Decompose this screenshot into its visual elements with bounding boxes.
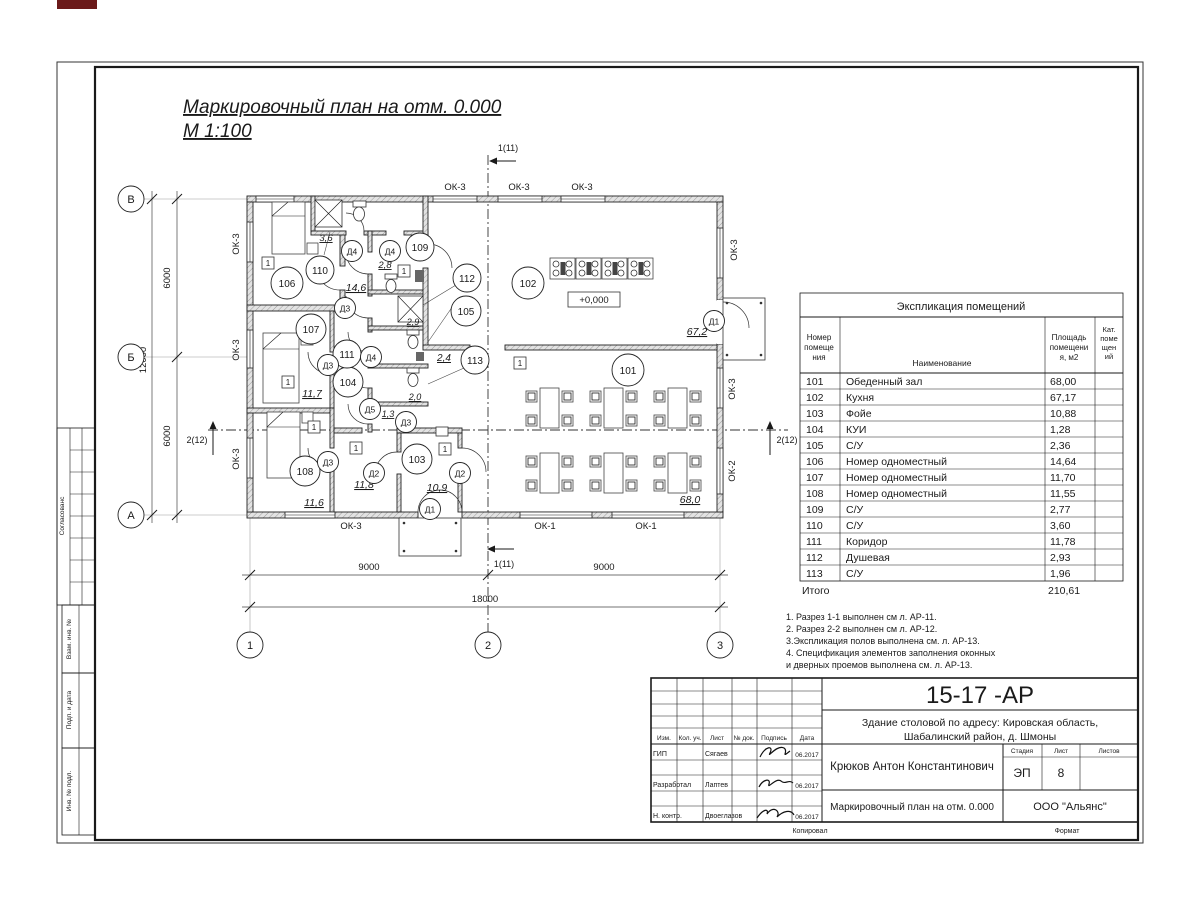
axis-row-a: А xyxy=(127,510,135,522)
row-area: 11,55 xyxy=(1050,488,1076,500)
room-number-106: 106 xyxy=(279,279,296,290)
bed-106 xyxy=(272,202,305,254)
note-line: 4. Спецификация элементов заполнения око… xyxy=(786,648,996,658)
door-label-d1: Д1 xyxy=(709,317,720,327)
floor-mark: 1 xyxy=(286,378,291,387)
section-mark-2: 2(12) xyxy=(186,435,207,445)
row-name: Номер одноместный xyxy=(846,472,947,484)
sink xyxy=(416,352,424,361)
row-name: С/У xyxy=(846,504,864,516)
row-num: 109 xyxy=(806,504,824,516)
tb-role-razrabotal: Разработал xyxy=(653,781,691,789)
room-number-105: 105 xyxy=(458,307,475,318)
scan-artifact xyxy=(57,0,97,9)
nightstand xyxy=(307,243,318,254)
room-area-102: 67,2 xyxy=(687,326,708,338)
notes: 1. Разрез 1-1 выполнен см л. АР-11. 2. Р… xyxy=(786,612,996,670)
toilet-tank xyxy=(353,201,366,207)
col-header-num: Номер xyxy=(807,333,832,342)
floor-mark: 1 xyxy=(443,445,448,454)
row-area: 1,28 xyxy=(1050,424,1071,436)
col-header-area: помещени xyxy=(1050,343,1089,352)
drawing-name: Маркировочный план на отм. 0.000 xyxy=(830,802,994,813)
tb-col-podpis: Подпись xyxy=(761,735,787,742)
room-number-104: 104 xyxy=(340,378,357,389)
row-area: 11,78 xyxy=(1050,536,1076,548)
dim-18000: 18000 xyxy=(472,594,498,605)
stage-value: ЭП xyxy=(1013,766,1030,780)
doc-number: 15-17 -АР xyxy=(926,682,1034,709)
row-num: 102 xyxy=(806,392,824,404)
kitchen-stoves xyxy=(550,258,653,279)
tb-col-dok: № док. xyxy=(734,735,755,742)
window-label-ok2: ОК-2 xyxy=(727,460,738,481)
toilet-tank xyxy=(385,274,397,279)
sheet-label: Лист xyxy=(1054,748,1068,755)
format-label: Формат xyxy=(1055,828,1081,835)
row-name: С/У xyxy=(846,568,864,580)
axis-col-1: 1 xyxy=(247,640,253,652)
room-area-107: 11,7 xyxy=(302,388,323,400)
row-area: 68,00 xyxy=(1050,376,1076,388)
toilet-bowl xyxy=(408,336,418,349)
room-number-103: 103 xyxy=(409,455,426,466)
room-number-111: 111 xyxy=(339,350,355,361)
axis-col-2: 2 xyxy=(485,640,491,652)
room-number-107: 107 xyxy=(303,325,320,336)
stamp-inv-label: Инв. № подл. xyxy=(66,771,73,812)
col-header-cat: ий xyxy=(1105,352,1113,361)
total-label: Итого xyxy=(802,585,830,597)
sink-foyer xyxy=(436,427,448,436)
author-name: Крюков Антон Константинович xyxy=(830,761,994,773)
door-label-d3: Д3 xyxy=(323,361,334,371)
room-number-109: 109 xyxy=(412,243,429,254)
sink xyxy=(415,270,424,282)
door-label-d2: Д2 xyxy=(369,469,380,479)
row-num: 112 xyxy=(806,552,823,564)
tb-role-nkontr: Н. контр. xyxy=(653,813,682,820)
copied-label: Копировал xyxy=(792,828,827,835)
door-label-d2: Д2 xyxy=(455,469,466,479)
room-number-113: 113 xyxy=(467,356,483,367)
tb-name-dvoeglazov: Двоеглазов xyxy=(705,813,742,820)
door-label-d4: Д4 xyxy=(347,247,358,257)
col-header-area: Площадь xyxy=(1052,333,1087,342)
toilet-tank xyxy=(407,330,419,335)
row-name: С/У xyxy=(846,440,864,452)
door-label-d5: Д5 xyxy=(365,405,376,415)
col-header-num: ния xyxy=(812,353,825,362)
room-number-108: 108 xyxy=(297,467,314,478)
row-name: С/У xyxy=(846,520,864,532)
row-name: КУИ xyxy=(846,424,866,436)
dim-9000-left: 9000 xyxy=(358,562,379,573)
window-label-ok3: ОК-3 xyxy=(444,182,465,193)
dimensions-bottom: 9000 9000 18000 1 2 3 xyxy=(237,562,733,658)
floor-plan: ОК-3 ОК-3 ОК-3 ОК-3 ОК-3 ОК-3 ОК-3 ОК-1 … xyxy=(118,143,798,658)
note-line: 2. Разрез 2-2 выполнен см л. АР-12. xyxy=(786,624,937,634)
bed-107 xyxy=(263,333,299,403)
row-num: 108 xyxy=(806,488,824,500)
object-address-line1: Здание столовой по адресу: Кировская обл… xyxy=(862,717,1098,729)
page-title-line1: Маркировочный план на отм. 0.000 xyxy=(183,97,502,118)
room-area-110: 3,6 xyxy=(319,233,333,244)
toilet-bowl xyxy=(354,207,365,221)
level-mark-value: +0,000 xyxy=(579,295,608,306)
tb-col-izm: Изм. xyxy=(657,735,671,742)
room-area-101: 68,0 xyxy=(680,494,701,506)
toilet-bowl xyxy=(386,280,396,293)
dim-6000-top: 6000 xyxy=(162,267,173,288)
col-header-name: Наименование xyxy=(913,358,972,368)
door-label-d1: Д1 xyxy=(425,505,436,515)
drawing-sheet: Согласованс Взам. инв. № Подп. и дата Ин… xyxy=(0,0,1200,900)
row-name: Душевая xyxy=(846,552,890,564)
row-area: 67,17 xyxy=(1050,392,1076,404)
window-label-ok3: ОК-3 xyxy=(231,233,242,254)
level-mark: +0,000 xyxy=(568,292,620,307)
explication-table: Экспликация помещений Номер помеще ния Н… xyxy=(800,293,1123,597)
col-header-cat: поме xyxy=(1100,334,1118,343)
row-name: Коридор xyxy=(846,536,888,548)
sheet-value: 8 xyxy=(1058,766,1065,780)
title-block: Изм. Кол. уч. Лист № док. Подпись Дата Г… xyxy=(651,678,1138,835)
signature xyxy=(759,780,793,787)
row-name: Номер одноместный xyxy=(846,456,947,468)
floor-mark: 1 xyxy=(312,423,317,432)
row-num: 110 xyxy=(806,520,823,532)
explication-rows: 101Обеденный зал68,00 102Кухня67,17 103Ф… xyxy=(802,376,1080,597)
tb-name-sjagaev: Сягаев xyxy=(705,751,728,758)
dining-tables xyxy=(526,388,701,493)
floor-mark: 1 xyxy=(518,359,523,368)
total-value: 210,61 xyxy=(1048,585,1080,597)
col-header-cat: щен xyxy=(1102,343,1116,352)
col-header-cat: Кат. xyxy=(1102,325,1115,334)
window-label-ok3: ОК-3 xyxy=(231,339,242,360)
row-num: 111 xyxy=(806,536,822,548)
col-header-area: я, м2 xyxy=(1060,353,1079,362)
axis-row-v: В xyxy=(127,194,134,206)
row-area: 14,64 xyxy=(1050,456,1076,468)
page-title-line2: М 1:100 xyxy=(183,121,252,142)
tb-date: 06.2017 xyxy=(795,783,819,790)
stamp-podp-label: Подп. и дата xyxy=(66,690,73,729)
row-area: 11,70 xyxy=(1050,472,1076,484)
stage-label: Стадия xyxy=(1011,748,1034,755)
row-name: Фойе xyxy=(846,408,872,420)
section-mark-1: 1(11) xyxy=(494,559,514,569)
tb-col-list: Лист xyxy=(710,735,724,742)
tb-col-data: Дата xyxy=(800,735,815,742)
floor-mark: 1 xyxy=(266,259,271,268)
toilet-tank xyxy=(407,368,419,373)
tb-col-koluch: Кол. уч. xyxy=(678,735,701,742)
sheet-svg: Согласованс Взам. инв. № Подп. и дата Ин… xyxy=(0,0,1200,900)
room-area-103: 10,9 xyxy=(427,482,448,494)
window-label-ok3: ОК-3 xyxy=(340,521,361,532)
row-name: Кухня xyxy=(846,392,874,404)
room-number-102: 102 xyxy=(520,279,537,290)
row-num: 113 xyxy=(806,568,823,580)
section-mark-1: 1(11) xyxy=(498,143,518,153)
door-label-d3: Д3 xyxy=(323,458,334,468)
door-label-d4: Д4 xyxy=(385,247,396,257)
toilet-bowl xyxy=(408,374,418,387)
tb-date: 06.2017 xyxy=(795,814,819,821)
note-line: и дверных проемов выполнена см. л. АР-13… xyxy=(786,660,972,670)
window-label-ok3: ОК-3 xyxy=(729,239,740,260)
window-label-ok1: ОК-1 xyxy=(635,521,656,532)
floor-mark: 1 xyxy=(402,267,407,276)
tb-name-laptev: Лаптев xyxy=(705,782,728,789)
signature xyxy=(757,809,794,818)
row-area: 2,36 xyxy=(1050,440,1071,452)
axis-row-b: Б xyxy=(127,352,134,364)
door-label-d3: Д3 xyxy=(401,418,412,428)
note-line: 1. Разрез 1-1 выполнен см л. АР-11. xyxy=(786,612,937,622)
door-label-d4: Д4 xyxy=(366,353,377,363)
row-num: 103 xyxy=(806,408,824,420)
row-name: Номер одноместный xyxy=(846,488,947,500)
room-area-113: 2,0 xyxy=(408,392,422,402)
room-area-106: 14,6 xyxy=(346,282,367,294)
tb-date: 06.2017 xyxy=(795,752,819,759)
window-label-ok3: ОК-3 xyxy=(727,378,738,399)
room-number-101: 101 xyxy=(620,366,637,377)
floor-mark: 1 xyxy=(354,444,359,453)
explication-title: Экспликация помещений xyxy=(897,301,1026,313)
company-name: ООО "Альянс" xyxy=(1033,801,1107,813)
row-num: 107 xyxy=(806,472,824,484)
row-area: 10,88 xyxy=(1050,408,1076,420)
margin-stamp: Согласованс Взам. инв. № Подп. и дата Ин… xyxy=(57,428,95,835)
door-label-d3: Д3 xyxy=(340,304,351,314)
room-area-108: 11,6 xyxy=(304,497,324,509)
row-area: 2,93 xyxy=(1050,552,1071,564)
row-num: 105 xyxy=(806,440,824,452)
row-area: 2,77 xyxy=(1050,504,1071,516)
note-line: 3.Экспликация полов выполнена см. л. АР-… xyxy=(786,636,980,646)
axis-col-3: 3 xyxy=(717,640,723,652)
col-header-num: помеще xyxy=(804,343,834,352)
window-label-ok3: ОК-3 xyxy=(508,182,529,193)
dim-9000-right: 9000 xyxy=(593,562,614,573)
row-num: 104 xyxy=(806,424,824,436)
tb-role-gip: ГИП xyxy=(653,751,667,758)
window-label-ok1: ОК-1 xyxy=(534,521,555,532)
window-label-ok3: ОК-3 xyxy=(231,448,242,469)
room-number-110: 110 xyxy=(312,266,328,277)
row-num: 106 xyxy=(806,456,824,468)
dim-6000-bottom: 6000 xyxy=(162,425,173,446)
stamp-agreed-label: Согласованс xyxy=(59,496,66,535)
stamp-vzam-label: Взам. инв. № xyxy=(66,619,73,659)
row-area: 3,60 xyxy=(1050,520,1071,532)
signature xyxy=(760,747,790,757)
object-address-line2: Шабалинский район, д. Шмоны xyxy=(904,731,1056,743)
sheet-title: Маркировочный план на отм. 0.000 М 1:100 xyxy=(183,97,502,142)
room-area-104: 1,3 xyxy=(382,409,395,419)
row-name: Обеденный зал xyxy=(846,376,922,388)
room-area-105: 2,4 xyxy=(436,353,451,364)
room-number-112: 112 xyxy=(459,274,475,285)
row-area: 1,96 xyxy=(1050,568,1071,580)
window-label-ok3: ОК-3 xyxy=(571,182,592,193)
sheets-label: Листов xyxy=(1098,748,1120,755)
row-num: 101 xyxy=(806,376,824,388)
section-mark-2: 2(12) xyxy=(776,435,797,445)
room-area-112: 2,9 xyxy=(406,317,420,327)
